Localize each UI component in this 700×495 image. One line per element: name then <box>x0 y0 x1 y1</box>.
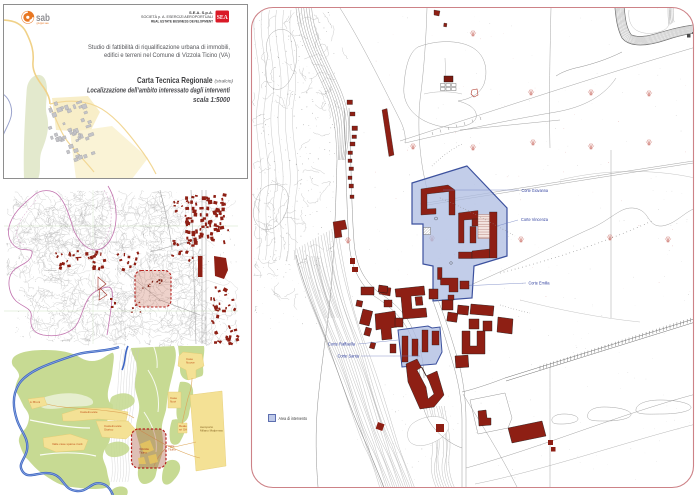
svg-text:Nuove: Nuove <box>186 361 195 365</box>
svg-text:Corte Raffaella: Corte Raffaella <box>328 341 356 346</box>
svg-text:Li Bruni: Li Bruni <box>30 400 41 404</box>
svg-text:edifici e terreni nel Comune d: edifici e terreni nel Comune di Vizzola … <box>104 52 230 59</box>
svg-text:(stralcio): (stralcio) <box>215 79 234 84</box>
svg-text:Corte Emilia: Corte Emilia <box>529 280 551 285</box>
svg-text:SEA: SEA <box>217 14 228 21</box>
svg-text:REAL ESTATE BUSINESS DEVELOPME: REAL ESTATE BUSINESS DEVELOPMENT <box>151 20 213 24</box>
svg-text:gruppo sea: gruppo sea <box>37 22 50 25</box>
svg-text:Storico: Storico <box>104 427 114 431</box>
svg-text:Corte Giovanna: Corte Giovanna <box>522 188 549 193</box>
svg-text:Novi: Novi <box>170 399 176 403</box>
svg-text:Carta Tecnica Regionale: Carta Tecnica Regionale <box>137 75 213 85</box>
svg-text:Milano Malpensa: Milano Malpensa <box>200 429 223 433</box>
svg-text:Corte Vincenza: Corte Vincenza <box>521 217 549 222</box>
svg-text:scala 1:5000: scala 1:5000 <box>193 95 231 104</box>
svg-text:Castelnovate: Castelnovate <box>80 410 98 414</box>
svg-text:Valle case sparse riord.: Valle case sparse riord. <box>52 442 83 446</box>
svg-text:Localizzazione dell’ambito int: Localizzazione dell’ambito interessato d… <box>87 85 231 94</box>
svg-text:Ticino: Ticino <box>139 450 147 454</box>
svg-text:Studio di fattibilità di riqua: Studio di fattibilità di riqualificazion… <box>88 44 230 51</box>
svg-text:S.E.A. S.p.A.: S.E.A. S.p.A. <box>189 11 213 15</box>
svg-text:sri SA: sri SA <box>179 427 187 431</box>
svg-text:Castelnovate: Castelnovate <box>44 269 58 272</box>
svg-text:SOCIETÀ p. A. ESERCIZI AEROPOR: SOCIETÀ p. A. ESERCIZI AEROPORTUALI <box>141 15 213 19</box>
svg-text:Area di intervento: Area di intervento <box>279 416 308 421</box>
svg-text:Ticino: Ticino <box>168 447 176 451</box>
svg-text:Corte Santa: Corte Santa <box>338 353 360 358</box>
